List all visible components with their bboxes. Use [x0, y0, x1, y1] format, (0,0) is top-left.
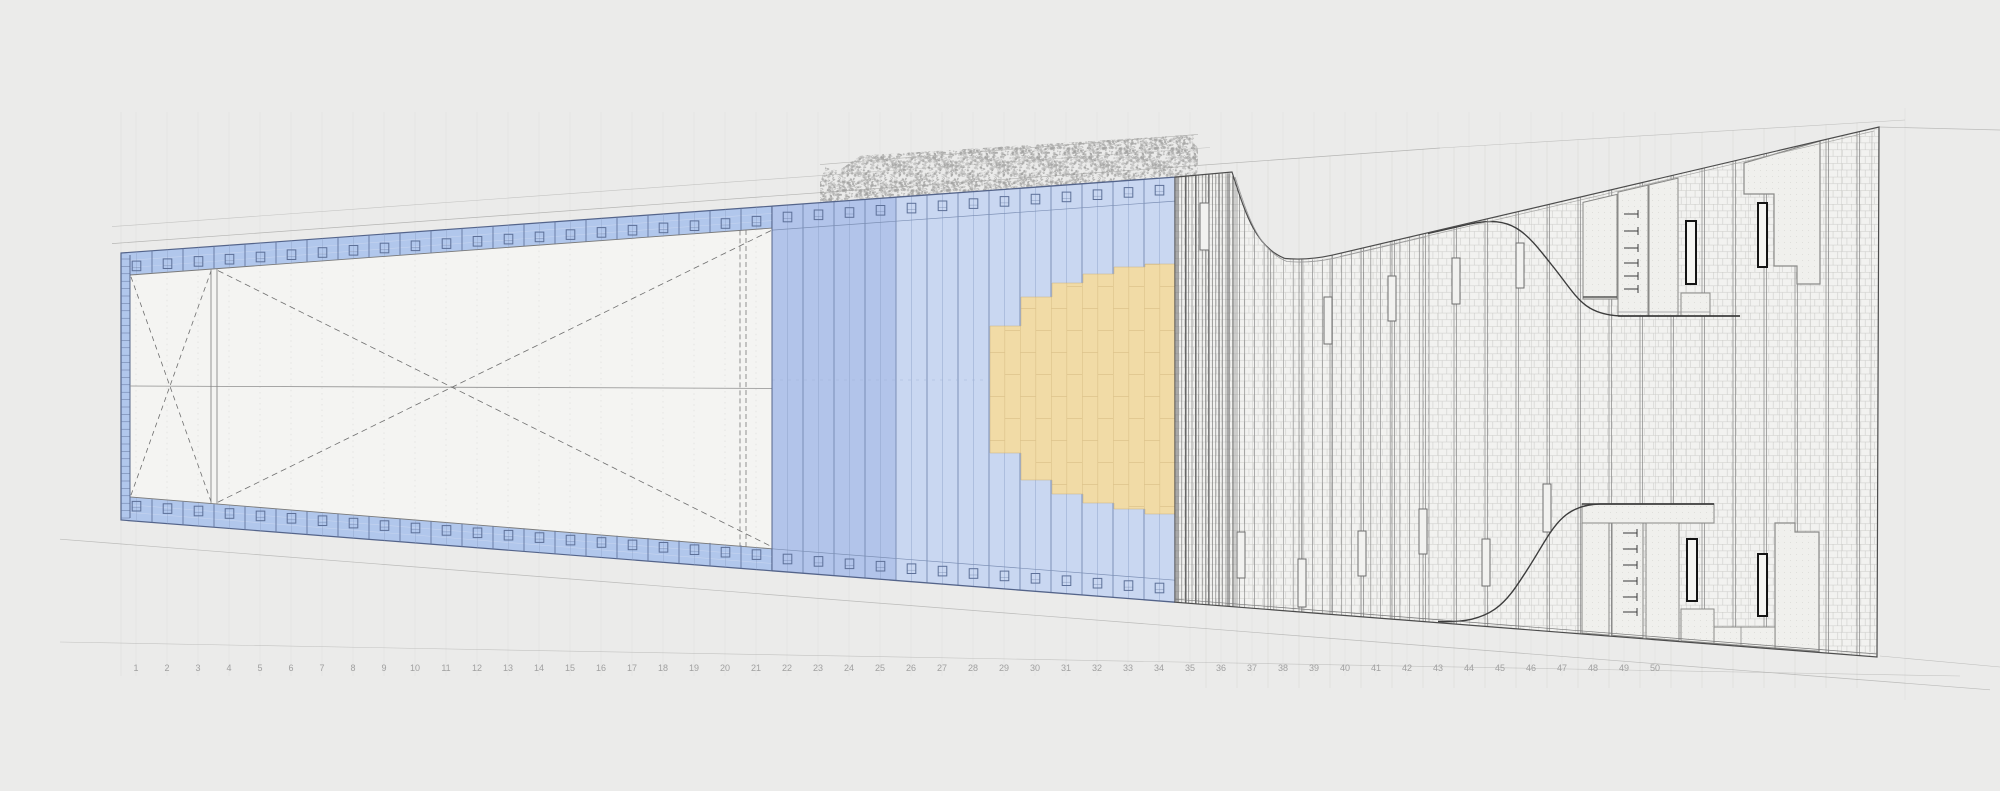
svg-text:33: 33 [1123, 663, 1133, 673]
svg-text:31: 31 [1061, 663, 1071, 673]
svg-text:23: 23 [813, 663, 823, 673]
svg-text:35: 35 [1185, 663, 1195, 673]
svg-text:18: 18 [658, 663, 668, 673]
svg-text:46: 46 [1526, 663, 1536, 673]
svg-text:11: 11 [441, 663, 450, 673]
svg-text:30: 30 [1030, 663, 1040, 673]
svg-text:48: 48 [1588, 663, 1598, 673]
svg-text:21: 21 [751, 663, 761, 673]
svg-text:14: 14 [534, 663, 544, 673]
svg-text:34: 34 [1154, 663, 1164, 673]
svg-text:16: 16 [596, 663, 606, 673]
svg-text:24: 24 [844, 663, 854, 673]
svg-text:45: 45 [1495, 663, 1505, 673]
svg-text:44: 44 [1464, 663, 1474, 673]
svg-text:40: 40 [1340, 663, 1350, 673]
svg-text:38: 38 [1278, 663, 1288, 673]
svg-text:50: 50 [1650, 663, 1660, 673]
svg-text:9: 9 [381, 663, 386, 673]
svg-text:5: 5 [257, 663, 262, 673]
svg-text:10: 10 [410, 663, 420, 673]
svg-text:29: 29 [999, 663, 1009, 673]
svg-text:15: 15 [565, 663, 575, 673]
svg-text:42: 42 [1402, 663, 1412, 673]
svg-text:26: 26 [906, 663, 916, 673]
svg-text:19: 19 [689, 663, 699, 673]
svg-text:13: 13 [503, 663, 513, 673]
svg-text:37: 37 [1247, 663, 1257, 673]
svg-text:49: 49 [1619, 663, 1629, 673]
svg-text:20: 20 [720, 663, 730, 673]
svg-text:41: 41 [1371, 663, 1381, 673]
svg-text:43: 43 [1433, 663, 1443, 673]
svg-text:28: 28 [968, 663, 978, 673]
svg-text:1: 1 [133, 663, 138, 673]
svg-text:32: 32 [1092, 663, 1102, 673]
svg-text:17: 17 [627, 663, 637, 673]
svg-text:3: 3 [195, 663, 200, 673]
svg-text:7: 7 [319, 663, 324, 673]
svg-text:12: 12 [472, 663, 482, 673]
svg-text:25: 25 [875, 663, 885, 673]
svg-text:8: 8 [350, 663, 355, 673]
svg-text:36: 36 [1216, 663, 1226, 673]
svg-text:22: 22 [782, 663, 792, 673]
svg-text:2: 2 [164, 663, 169, 673]
svg-text:47: 47 [1557, 663, 1567, 673]
svg-text:4: 4 [226, 663, 231, 673]
svg-text:27: 27 [937, 663, 947, 673]
svg-text:39: 39 [1309, 663, 1319, 673]
svg-text:6: 6 [288, 663, 293, 673]
